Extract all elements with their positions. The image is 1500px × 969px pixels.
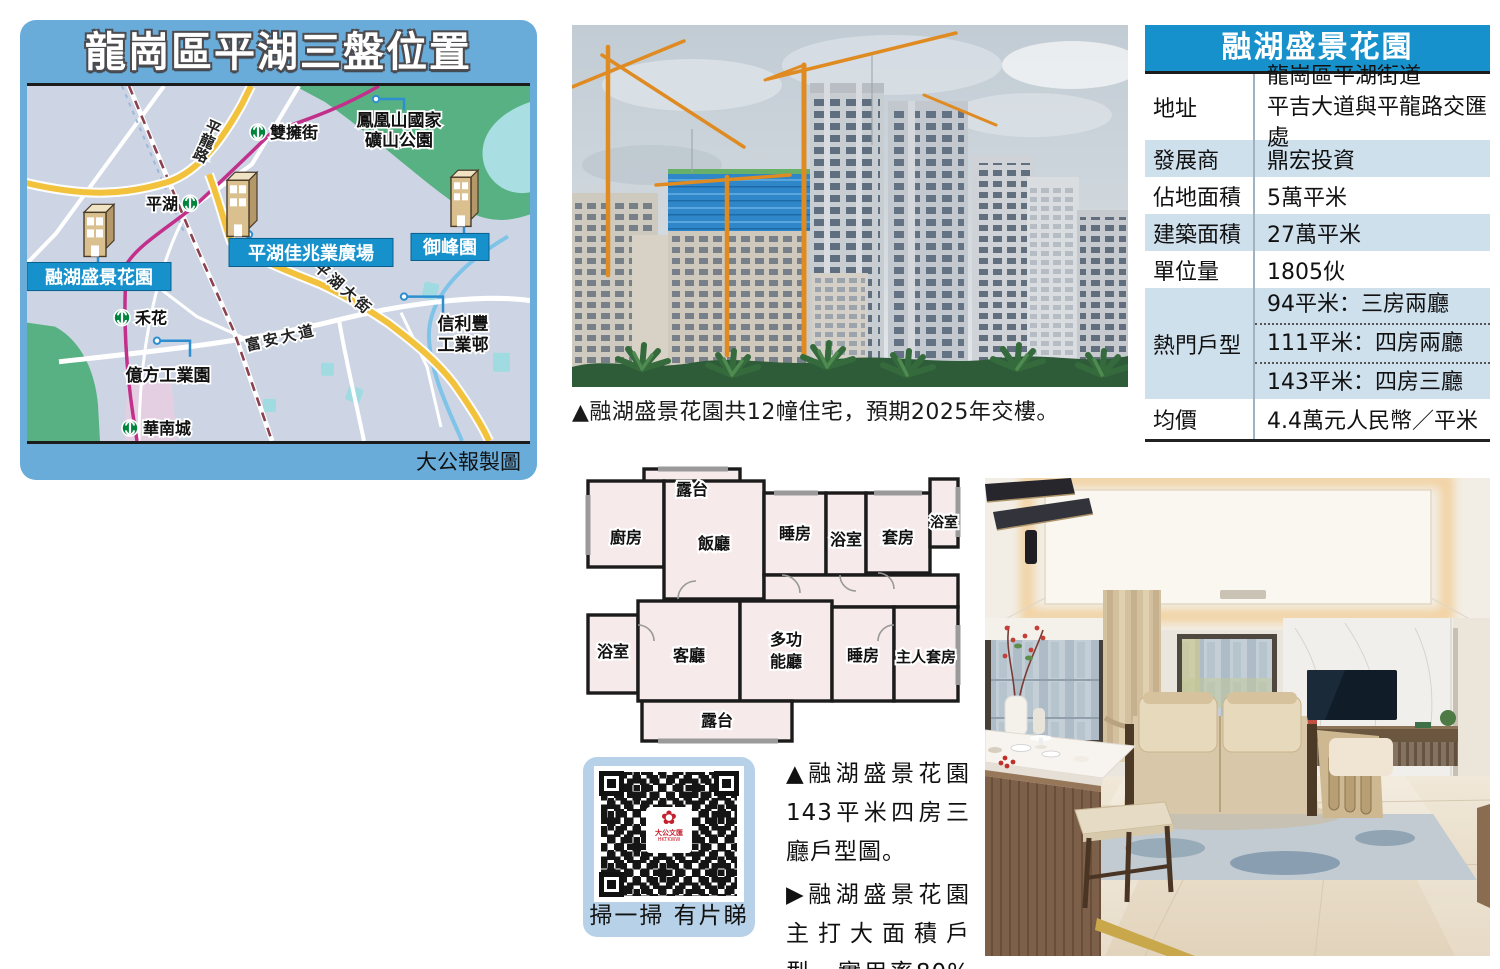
row-label: 發展商 [1145, 140, 1255, 177]
console-decor-green [1415, 722, 1431, 728]
building-icon-jiazhao [227, 172, 257, 236]
place-label-xinlifeng2: 工業邨 [438, 335, 489, 356]
room-label-balcony-top: 露台 [676, 480, 708, 499]
table-row: 單位量 1805伙 [1145, 251, 1490, 288]
svg-text:御峰園: 御峰園 [422, 236, 477, 258]
qr-code: ✿ 大公文匯 HKTKWW [594, 766, 744, 902]
construction-photo [572, 25, 1128, 387]
mtr-station-icon-hehua [114, 310, 130, 326]
row-label: 地址 [1145, 74, 1255, 140]
construction-photo-caption: ▲融湖盛景花園共12幢住宅，預期2025年交樓。 [572, 394, 1128, 426]
hot-unit-item: 94平米：三房兩廳 [1255, 286, 1490, 323]
qr-panel: ✿ 大公文匯 HKTKWW 掃一掃 有片睇 [583, 757, 755, 937]
page: 龍崗區平湖三盤位置 [0, 0, 1500, 969]
interior-photo-graphic: 仅供展示 请勿触摸 [985, 478, 1490, 956]
place-label-xinlifeng1: 信利豐 [438, 314, 489, 335]
qr-caption: 掃一掃 有片睇 [583, 896, 755, 930]
row-value: 5萬平米 [1255, 180, 1490, 212]
room-label-bedroom-b: 睡房 [847, 646, 879, 665]
room-label-multi-2: 能廳 [770, 652, 802, 671]
row-value: 鼎宏投資 [1255, 143, 1490, 175]
qr-center-logo: ✿ 大公文匯 HKTKWW [646, 807, 692, 853]
table-row: 建築面積 27萬平米 [1145, 214, 1490, 251]
road-label-fuan: 富安大道 [244, 321, 318, 355]
room-label-bedroom-a: 睡房 [779, 524, 811, 543]
room-label-kitchen: 廚房 [610, 528, 642, 547]
floor-plan-graphic: 露台 廚房 飯廳 睡房 浴室 套房 浴室 浴室 客廳 多功 能廳 睡房 主人套房… [578, 465, 966, 747]
map-body: 雙擁街 平湖 禾花 華南城 平龍路 平湖大街 富安大道 鳳凰山國家 礦山公園 信… [27, 83, 530, 444]
row-value: 1805伙 [1255, 254, 1490, 286]
room-label-bath-left: 浴室 [597, 642, 629, 661]
hallway [1453, 618, 1490, 778]
building-icon-yufeng [451, 170, 478, 226]
side-cabinet-right [1477, 804, 1490, 908]
floorplan-caption: ▲融湖盛景花園143平米四房三廳戶型圖。 [786, 755, 970, 872]
floor-plan-rooms [588, 469, 958, 741]
qr-finder-icon [714, 771, 739, 796]
station-label-pinghu: 平湖 [146, 194, 178, 213]
room-label-balcony-bottom: 露台 [701, 711, 733, 730]
place-label-yifang: 億方工業園 [126, 365, 211, 386]
map-credit: 大公報製圖 [416, 447, 521, 478]
building-icon-ronghu [84, 204, 114, 256]
map-graphic: 雙擁街 平湖 禾花 華南城 平龍路 平湖大街 富安大道 鳳凰山國家 礦山公園 信… [27, 86, 530, 441]
ottoman [1329, 738, 1393, 776]
table-row-hot-units: 熱門戶型 94平米：三房兩廳 111平米：四房兩廳 143平米：四房三廳 [1145, 288, 1490, 399]
park-label-line1: 鳳凰山國家 [357, 110, 443, 131]
mtr-station-icon-pinghu [182, 195, 198, 211]
plant-right [1440, 710, 1456, 726]
mtr-station-icon-huanancheng [122, 420, 138, 436]
hot-unit-item: 143平米：四房三廳 [1255, 362, 1490, 401]
interior-caption: ▶融湖盛景花園主打大面積戶型，實用率80%以上。 [786, 876, 970, 969]
floor-plan: 露台 廚房 飯廳 睡房 浴室 套房 浴室 浴室 客廳 多功 能廳 睡房 主人套房… [578, 465, 966, 747]
row-label: 均價 [1145, 399, 1255, 439]
map-title: 龍崗區平湖三盤位置 [20, 20, 537, 80]
station-label-hehua: 禾花 [135, 309, 167, 328]
info-table: 融湖盛景花園 地址 龍崗區平湖街道 平吉大道與平龍路交匯處 發展商 鼎宏投資 佔… [1145, 25, 1490, 442]
row-value: 龍崗區平湖街道 平吉大道與平龍路交匯處 [1255, 61, 1490, 154]
map-label-yufeng: 御峰園 [411, 233, 489, 260]
mtr-station-icon-shuangyong [250, 124, 266, 140]
room-label-bath-top-right: 浴室 [930, 514, 958, 531]
room-label-dining: 飯廳 [697, 534, 730, 553]
map-label-ronghu: 融湖盛景花園 [27, 262, 171, 290]
qr-logo-text-en: HKTKWW [646, 837, 692, 844]
room-label-suite: 套房 [881, 528, 914, 547]
station-label-shuangyong: 雙擁街 [270, 123, 318, 142]
map-label-jiazhao: 平湖佳兆業廣場 [229, 238, 393, 266]
row-label: 熱門戶型 [1145, 288, 1255, 399]
table-row: 地址 龍崗區平湖街道 平吉大道與平龍路交匯處 [1145, 74, 1490, 140]
ac-vent [1220, 590, 1266, 599]
room-label-bath-a: 浴室 [830, 530, 862, 549]
row-value: 4.4萬元人民幣／平米 [1255, 403, 1490, 435]
svg-text:平湖佳兆業廣場: 平湖佳兆業廣場 [248, 242, 374, 264]
row-label: 單位量 [1145, 251, 1255, 288]
construction-photo-graphic [572, 25, 1128, 387]
ceiling-recess [1045, 490, 1431, 604]
interior-photo: 仅供展示 请勿触摸 [985, 478, 1490, 956]
row-label: 建築面積 [1145, 214, 1255, 251]
qr-logo-text-cn: 大公文匯 [646, 829, 692, 837]
room-label-living: 客廳 [673, 646, 705, 665]
qr-finder-icon [599, 771, 624, 796]
map-panel: 龍崗區平湖三盤位置 [20, 20, 537, 480]
row-label: 佔地面積 [1145, 177, 1255, 214]
row-value: 27萬平米 [1255, 217, 1490, 249]
table-row: 佔地面積 5萬平米 [1145, 177, 1490, 214]
qr-finder-icon [599, 872, 624, 897]
row-value-list: 94平米：三房兩廳 111平米：四房兩廳 143平米：四房三廳 [1255, 286, 1490, 401]
room-label-multi-1: 多功 [770, 630, 802, 649]
room-label-master: 主人套房 [896, 648, 956, 666]
table-row: 發展商 鼎宏投資 [1145, 140, 1490, 177]
station-label-huanancheng: 華南城 [143, 419, 191, 438]
table-row: 均價 4.4萬元人民幣／平米 [1145, 399, 1490, 439]
park-label-line2: 礦山公園 [365, 130, 433, 151]
bauhinia-flower-icon: ✿ [646, 807, 692, 829]
svg-text:融湖盛景花園: 融湖盛景花園 [45, 267, 153, 289]
hot-unit-item: 111平米：四房兩廳 [1255, 323, 1490, 362]
